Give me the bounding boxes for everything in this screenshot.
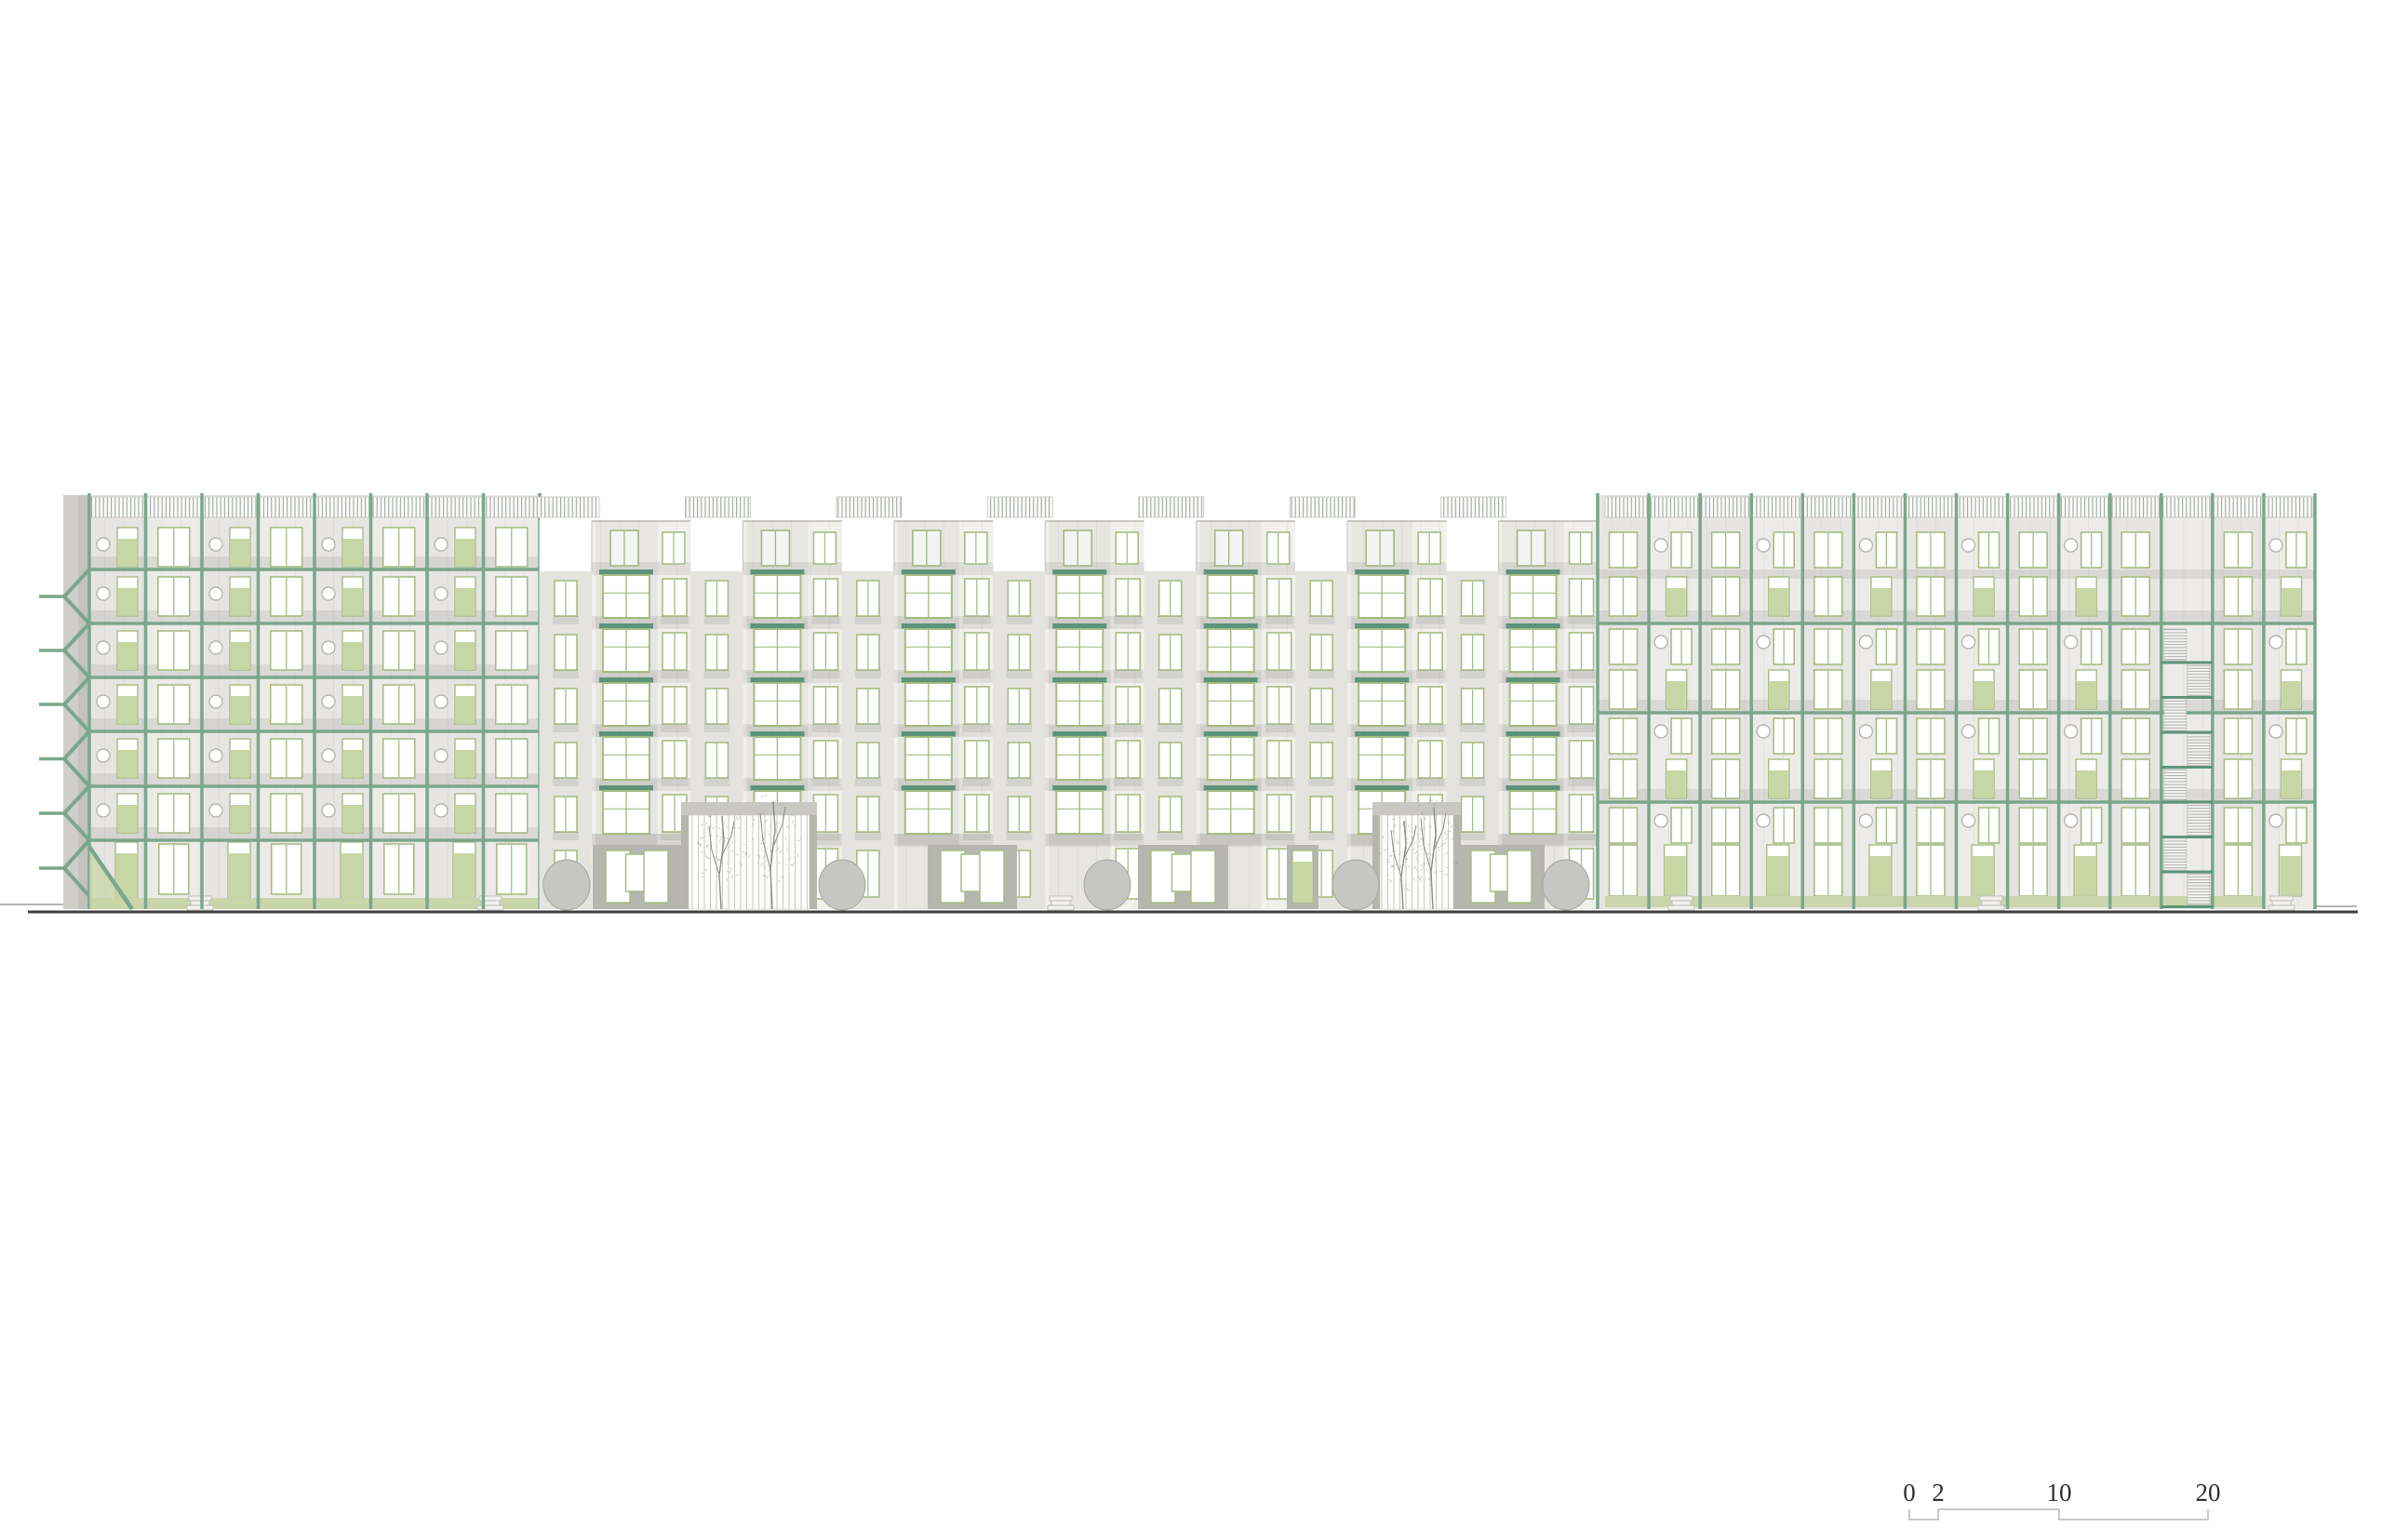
porthole-icon	[1757, 814, 1770, 827]
passage	[689, 815, 810, 909]
steps	[1668, 896, 1694, 910]
door	[1666, 759, 1687, 798]
door-panel	[118, 588, 137, 615]
sill-shade	[1114, 670, 1142, 678]
porthole-icon	[209, 804, 222, 817]
sill-shade	[1416, 724, 1444, 732]
window	[1267, 633, 1291, 670]
porthole-icon	[2065, 539, 2078, 552]
window	[1814, 845, 1842, 896]
balcony-window	[1052, 569, 1106, 618]
roof-hatch	[685, 497, 750, 517]
window	[1814, 577, 1842, 616]
window	[1671, 718, 1692, 754]
door-panel	[456, 696, 475, 723]
door-panel	[231, 588, 249, 615]
sill-shade	[963, 670, 991, 678]
balcony-window	[1052, 731, 1106, 780]
window	[1610, 532, 1638, 568]
window	[496, 631, 528, 670]
door	[1974, 577, 1994, 616]
window	[2019, 532, 2047, 568]
window	[1979, 629, 2000, 664]
window	[1814, 532, 1842, 568]
window	[497, 844, 527, 894]
balcony-rail	[750, 785, 804, 791]
step	[1048, 905, 1074, 910]
door-panel	[231, 539, 249, 566]
door-panel	[2280, 856, 2300, 895]
balcony-window	[902, 677, 956, 726]
door-panel	[1667, 681, 1686, 708]
porthole-icon	[1757, 539, 1770, 552]
roof-hatch	[836, 497, 902, 517]
door	[455, 794, 475, 833]
door	[228, 842, 250, 898]
window	[1917, 577, 1945, 616]
right-grid-section	[1598, 493, 2315, 910]
roof-hatch	[1290, 497, 1355, 517]
door-panel	[2075, 856, 2095, 895]
sill-shade	[1568, 778, 1596, 786]
window	[1462, 689, 1484, 724]
window	[662, 687, 687, 724]
window	[1979, 718, 2000, 754]
window	[705, 743, 728, 778]
window	[1418, 579, 1442, 616]
porthole-icon	[435, 538, 448, 551]
window	[555, 635, 577, 670]
door	[342, 631, 363, 670]
window	[1310, 743, 1332, 778]
door	[455, 739, 475, 778]
door	[342, 528, 363, 567]
window	[1876, 718, 1896, 754]
steps	[187, 896, 213, 910]
door	[1972, 845, 1994, 896]
window	[1712, 577, 1740, 616]
balcony-window	[1506, 677, 1560, 726]
window	[1008, 797, 1030, 832]
door	[1769, 670, 1789, 709]
window	[813, 795, 837, 832]
door	[230, 739, 250, 778]
sill-shade	[811, 670, 839, 678]
door	[342, 739, 363, 778]
window	[2081, 532, 2102, 568]
sill-shade	[1158, 616, 1184, 624]
door-panel	[343, 805, 362, 832]
sill-shade	[963, 724, 991, 732]
door	[1974, 759, 1994, 798]
door-panel	[456, 805, 475, 832]
step	[187, 905, 213, 910]
door-panel	[231, 696, 249, 723]
balcony-rail	[750, 623, 804, 629]
window	[1610, 629, 1638, 664]
passage-lintel	[681, 802, 817, 815]
window	[1418, 633, 1442, 670]
door	[455, 631, 475, 670]
porthole-icon	[1962, 636, 1975, 649]
window	[965, 532, 987, 564]
window	[496, 528, 528, 567]
window	[1917, 808, 1945, 843]
balcony-rail	[902, 731, 956, 737]
step	[1051, 901, 1070, 905]
window	[1814, 670, 1842, 709]
window	[271, 577, 302, 616]
door	[342, 794, 363, 833]
sill-shade	[661, 616, 689, 624]
steps	[2268, 896, 2295, 910]
link-recess	[1447, 517, 1499, 571]
balcony-rail	[750, 731, 804, 737]
balcony-window	[1204, 623, 1258, 672]
porthole-icon	[209, 587, 222, 600]
window	[383, 631, 415, 670]
door	[1767, 845, 1789, 896]
window	[555, 743, 577, 778]
balcony-rail	[1052, 623, 1106, 629]
porthole-icon	[322, 749, 335, 762]
window	[2224, 718, 2252, 754]
balcony-window	[1052, 623, 1106, 672]
balcony-rail	[1204, 731, 1258, 737]
elevation-svg: 0 2 10 20	[0, 0, 2382, 1540]
sill-shade	[1158, 778, 1184, 786]
window	[1814, 759, 1842, 798]
window	[857, 797, 879, 832]
sill-shade	[963, 778, 991, 786]
door	[117, 631, 138, 670]
link-recess	[1144, 517, 1197, 571]
door	[2279, 845, 2301, 896]
porthole-icon	[97, 695, 110, 708]
sill-shade	[1568, 616, 1596, 624]
window	[1570, 633, 1594, 670]
porthole-icon	[97, 804, 110, 817]
porthole-icon	[209, 538, 222, 551]
door-panel	[1974, 770, 1993, 797]
window	[1267, 532, 1290, 564]
window	[1917, 759, 1945, 798]
window	[813, 633, 837, 670]
window	[383, 685, 415, 724]
door	[230, 577, 250, 616]
sill-shade	[855, 616, 881, 624]
door	[1871, 670, 1892, 709]
balcony-rail	[599, 785, 653, 791]
balcony-rail	[1355, 623, 1409, 629]
storefront-door	[644, 850, 668, 903]
porthole-icon	[1654, 725, 1667, 738]
window	[1116, 741, 1140, 778]
porthole-icon	[322, 587, 335, 600]
sill-shade	[1308, 778, 1334, 786]
porthole-icon	[97, 749, 110, 762]
window	[2019, 577, 2047, 616]
stair-step	[2164, 629, 2187, 661]
tree-foliage	[1425, 813, 1426, 814]
window	[384, 844, 414, 894]
door	[2076, 670, 2096, 709]
balcony-window	[1506, 731, 1560, 780]
porthole-icon	[1859, 725, 1872, 738]
door	[117, 577, 138, 616]
balcony-rail	[902, 785, 956, 791]
window	[2019, 629, 2047, 664]
window	[1570, 795, 1594, 832]
balcony-rail	[1355, 731, 1409, 737]
balcony-slab	[1049, 834, 1110, 845]
balcony-rail	[1052, 569, 1106, 575]
window	[1267, 579, 1291, 616]
window	[662, 633, 687, 670]
window	[2224, 845, 2252, 896]
window	[1462, 635, 1484, 670]
balcony-window	[750, 677, 804, 726]
door-panel	[118, 805, 137, 832]
window	[555, 797, 577, 832]
window	[1610, 718, 1638, 754]
window	[965, 741, 989, 778]
window	[1116, 795, 1140, 832]
door	[2281, 759, 2301, 798]
passage-lintel	[1372, 802, 1461, 815]
window	[2019, 718, 2047, 754]
sill-shade	[1308, 724, 1334, 732]
stair-step	[2188, 804, 2210, 836]
porthole-icon	[435, 804, 448, 817]
window	[1310, 635, 1332, 670]
balcony-rail	[902, 569, 956, 575]
window	[857, 689, 879, 724]
window	[1159, 797, 1182, 832]
sill-shade	[1416, 778, 1444, 786]
window	[272, 844, 301, 894]
porthole-icon	[97, 538, 110, 551]
balcony-window	[750, 731, 804, 780]
window	[813, 687, 837, 724]
sill-shade	[1265, 616, 1293, 624]
sill-shade	[811, 724, 839, 732]
balcony-rail	[1355, 677, 1409, 683]
passage-pier	[681, 815, 689, 909]
link-recess	[540, 517, 592, 571]
window	[1773, 808, 1794, 843]
door	[2076, 577, 2096, 616]
window	[705, 581, 728, 616]
porthole-icon	[322, 695, 335, 708]
steps	[1978, 896, 2004, 910]
window	[857, 743, 879, 778]
porthole-icon	[1654, 539, 1667, 552]
window	[1979, 532, 2000, 568]
window	[1712, 629, 1740, 664]
balcony-rail	[599, 569, 653, 575]
window	[1570, 532, 1592, 564]
door-panel	[1872, 770, 1891, 797]
sill-shade	[855, 724, 881, 732]
window	[2224, 577, 2252, 616]
stair-step	[2164, 838, 2187, 870]
window	[271, 631, 302, 670]
step	[1668, 905, 1694, 910]
window	[965, 579, 989, 616]
window	[1267, 687, 1291, 724]
sill-shade	[1308, 832, 1334, 840]
window	[2081, 808, 2102, 843]
window	[496, 794, 528, 833]
porthole-icon	[1962, 539, 1975, 552]
stair-step	[2188, 664, 2210, 696]
door	[455, 577, 475, 616]
door	[1666, 670, 1687, 709]
window	[1979, 808, 2000, 843]
door-panel	[1666, 856, 1686, 895]
passage-pier	[1453, 815, 1461, 909]
sill-shade	[811, 778, 839, 786]
window	[2081, 718, 2102, 754]
sill-shade	[1114, 724, 1142, 732]
sill-shade	[1460, 616, 1486, 624]
roof-hatch	[534, 497, 599, 517]
stair-step	[2164, 699, 2187, 730]
balcony-window	[1204, 677, 1258, 726]
window	[1267, 741, 1291, 778]
balcony-window	[750, 623, 804, 672]
link-recess	[1295, 517, 1347, 571]
door-panel	[343, 588, 362, 615]
window	[1116, 687, 1140, 724]
window	[965, 633, 989, 670]
door-panel	[1770, 588, 1788, 615]
sill-shade	[811, 616, 839, 624]
window	[555, 581, 577, 616]
balcony-slab	[595, 834, 657, 845]
door-panel	[118, 539, 137, 566]
porthole-icon	[1654, 636, 1667, 649]
door-panel	[2282, 770, 2300, 797]
door-panel	[1872, 588, 1891, 615]
window	[1418, 532, 1440, 564]
balcony-slab	[898, 834, 959, 845]
window	[965, 795, 989, 832]
window	[1462, 743, 1484, 778]
door	[230, 794, 250, 833]
window	[1917, 629, 1945, 664]
balcony-rail	[1052, 731, 1106, 737]
window	[1008, 689, 1030, 724]
window	[662, 741, 687, 778]
balcony-rail	[599, 677, 653, 683]
door	[1871, 759, 1892, 798]
balcony-rail	[1052, 785, 1106, 791]
window	[1008, 635, 1030, 670]
window	[1462, 581, 1484, 616]
balcony-rail	[1355, 785, 1409, 791]
sill-shade	[1265, 832, 1293, 840]
sill-shade	[1114, 616, 1142, 624]
door	[342, 577, 363, 616]
window	[1462, 797, 1484, 832]
porthole-icon	[435, 695, 448, 708]
door-panel	[231, 750, 249, 777]
sill-shade	[1460, 778, 1486, 786]
door	[1869, 845, 1892, 896]
sill-shade	[703, 778, 729, 786]
sill-shade	[661, 724, 689, 732]
balcony-rail	[1204, 677, 1258, 683]
stair-step	[2188, 874, 2210, 905]
window	[2019, 670, 2047, 709]
step	[191, 901, 209, 905]
step	[1672, 901, 1691, 905]
window	[1671, 532, 1692, 568]
porthole-icon	[2065, 814, 2078, 827]
scale-bar-line	[1909, 1509, 2208, 1520]
sill-shade	[855, 670, 881, 678]
balcony-window	[1204, 731, 1258, 780]
bush-icon	[1332, 860, 1379, 910]
window	[2224, 629, 2252, 664]
balcony-window	[1204, 785, 1258, 834]
window	[1159, 581, 1182, 616]
window	[158, 577, 190, 616]
porthole-icon	[2065, 636, 2078, 649]
door-panel	[1770, 681, 1788, 708]
step	[1050, 896, 1072, 901]
balcony-rail	[1506, 569, 1560, 575]
door	[2074, 845, 2096, 896]
window	[2019, 808, 2047, 843]
balcony-rail	[750, 569, 804, 575]
sill-shade	[703, 670, 729, 678]
balcony-rail	[599, 623, 653, 629]
window	[1712, 759, 1740, 798]
balcony-slab	[1503, 834, 1564, 845]
door	[230, 631, 250, 670]
window	[2224, 808, 2252, 843]
window	[158, 528, 190, 567]
sill-shade	[703, 616, 729, 624]
link-recess	[993, 517, 1045, 571]
sill-shade	[1568, 724, 1596, 732]
balcony-rail	[750, 677, 804, 683]
door	[341, 842, 363, 898]
window	[1610, 670, 1638, 709]
window	[496, 685, 528, 724]
door-panel	[1973, 856, 1993, 895]
balcony-window	[1355, 623, 1409, 672]
sill-shade	[855, 778, 881, 786]
door-panel	[456, 539, 475, 566]
scale-label-2: 2	[1932, 1479, 1945, 1507]
door-panel	[2282, 681, 2300, 708]
window	[158, 794, 190, 833]
window	[1917, 718, 1945, 754]
window	[705, 689, 728, 724]
balcony-window	[902, 731, 956, 780]
door-panel	[118, 642, 137, 669]
window	[1712, 532, 1740, 568]
stair-step	[2164, 769, 2187, 800]
window	[1917, 670, 1945, 709]
door-panel	[2077, 770, 2095, 797]
window	[1671, 629, 1692, 664]
door	[1769, 759, 1789, 798]
